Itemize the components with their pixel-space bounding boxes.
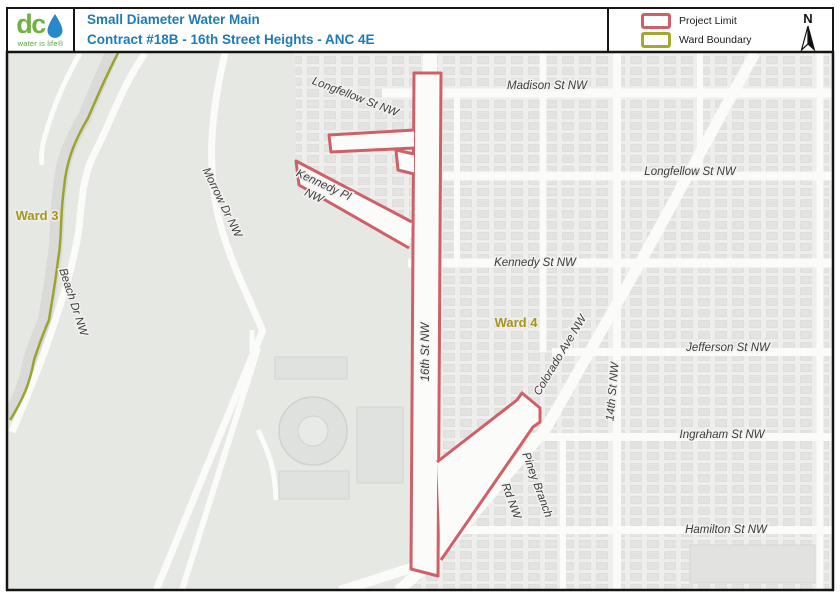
street-label-ingraham: Ingraham St NW bbox=[680, 429, 766, 441]
project-limit-stub bbox=[396, 150, 414, 174]
street-label-longfellow-east: Longfellow St NW bbox=[644, 166, 737, 178]
street-label-jefferson: Jefferson St NW bbox=[685, 342, 771, 354]
map-layers: Madison St NW Longfellow St NW Longfello… bbox=[6, 51, 834, 593]
large-building bbox=[690, 545, 815, 583]
ward-3-label: Ward 3 bbox=[16, 208, 59, 223]
project-limit-longfellow-strip bbox=[329, 130, 414, 152]
map-canvas: Madison St NW Longfellow St NW Longfello… bbox=[0, 0, 840, 600]
map-document: dc water is life® Small Diameter Water M… bbox=[0, 0, 840, 600]
ward-4-label: Ward 4 bbox=[495, 315, 539, 330]
street-label-hamilton: Hamilton St NW bbox=[685, 524, 768, 536]
street-label-madison: Madison St NW bbox=[507, 80, 588, 92]
street-label-16th-st: 16th St NW bbox=[420, 321, 432, 381]
street-label-kennedy: Kennedy St NW bbox=[494, 257, 577, 269]
